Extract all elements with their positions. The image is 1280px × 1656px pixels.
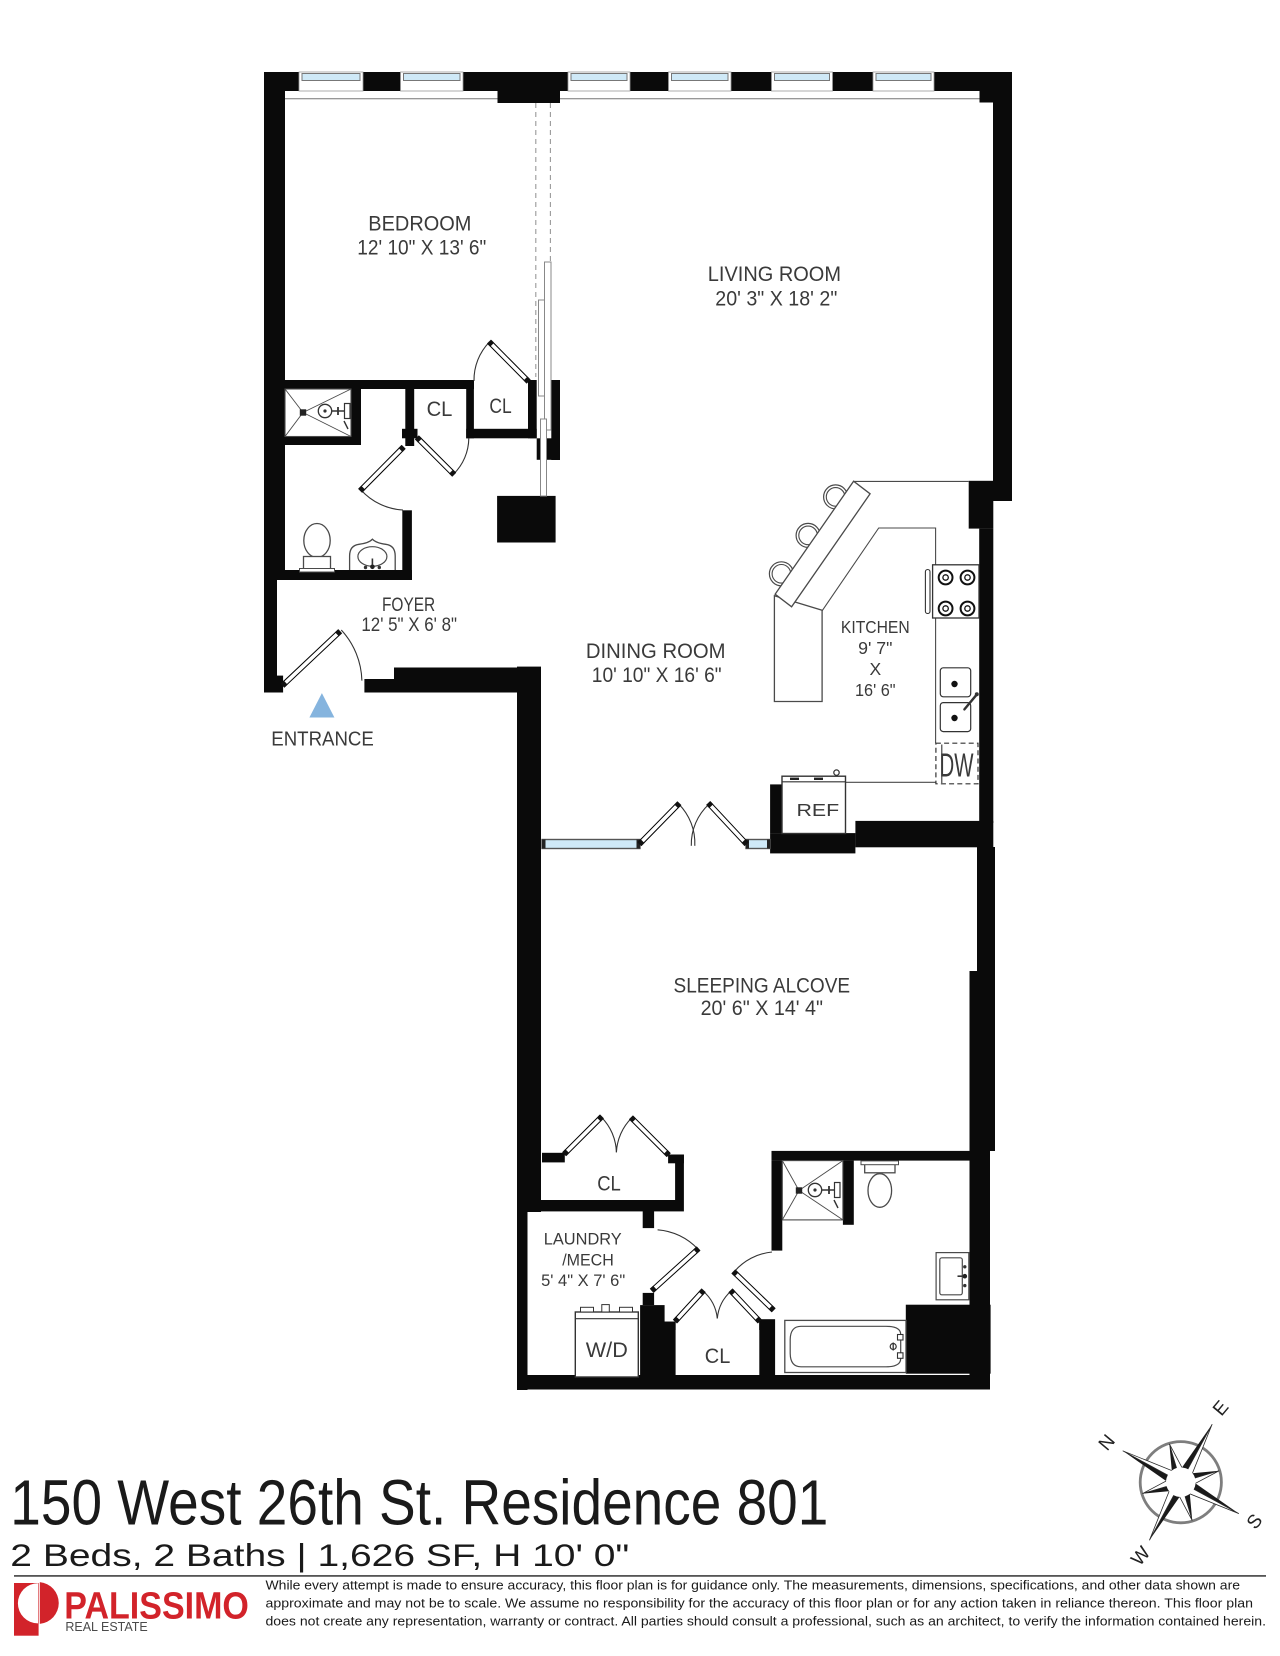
svg-text:approximate and may not be to: approximate and may not be to scale. We … <box>266 1596 1254 1611</box>
svg-text:FOYER: FOYER <box>382 594 435 616</box>
svg-text:ENTRANCE: ENTRANCE <box>271 729 374 751</box>
svg-text:20' 3" X 18' 2": 20' 3" X 18' 2" <box>715 286 837 310</box>
svg-text:DINING ROOM: DINING ROOM <box>586 639 726 663</box>
svg-text:CL: CL <box>427 398 453 421</box>
svg-text:REAL ESTATE: REAL ESTATE <box>65 1620 147 1634</box>
svg-text:12' 5" X 6' 8": 12' 5" X 6' 8" <box>361 614 457 636</box>
svg-text:20' 6" X 14' 4": 20' 6" X 14' 4" <box>701 996 823 1020</box>
svg-text:10' 10" X 16' 6": 10' 10" X 16' 6" <box>592 663 722 687</box>
svg-text:12' 10" X 13' 6": 12' 10" X 13' 6" <box>357 236 486 260</box>
svg-text:9' 7": 9' 7" <box>858 638 892 658</box>
svg-text:CL: CL <box>705 1345 731 1368</box>
svg-text:16' 6": 16' 6" <box>855 680 896 700</box>
svg-text:DW: DW <box>940 747 975 784</box>
svg-text:150 West 26th St. Residence 80: 150 West 26th St. Residence 801 <box>10 1467 828 1539</box>
svg-text:W/D: W/D <box>586 1339 628 1362</box>
svg-text:does not create any representa: does not create any representation, warr… <box>266 1614 1267 1629</box>
svg-text:KITCHEN: KITCHEN <box>841 617 910 637</box>
svg-text:X: X <box>870 659 882 679</box>
svg-text:BEDROOM: BEDROOM <box>368 212 471 236</box>
svg-text:LAUNDRY: LAUNDRY <box>544 1230 622 1249</box>
svg-text:SLEEPING ALCOVE: SLEEPING ALCOVE <box>674 973 851 997</box>
svg-text:5' 4" X 7' 6": 5' 4" X 7' 6" <box>541 1271 625 1290</box>
svg-text:/MECH: /MECH <box>562 1251 614 1270</box>
svg-text:REF: REF <box>797 800 840 820</box>
svg-text:While every attempt is made to: While every attempt is made to ensure ac… <box>266 1578 1241 1593</box>
svg-text:CL: CL <box>597 1172 621 1195</box>
svg-text:CL: CL <box>489 395 511 418</box>
svg-text:2 Beds, 2 Baths | 1,626 SF, H: 2 Beds, 2 Baths | 1,626 SF, H 10' 0" <box>10 1537 629 1573</box>
svg-text:LIVING ROOM: LIVING ROOM <box>708 262 841 286</box>
